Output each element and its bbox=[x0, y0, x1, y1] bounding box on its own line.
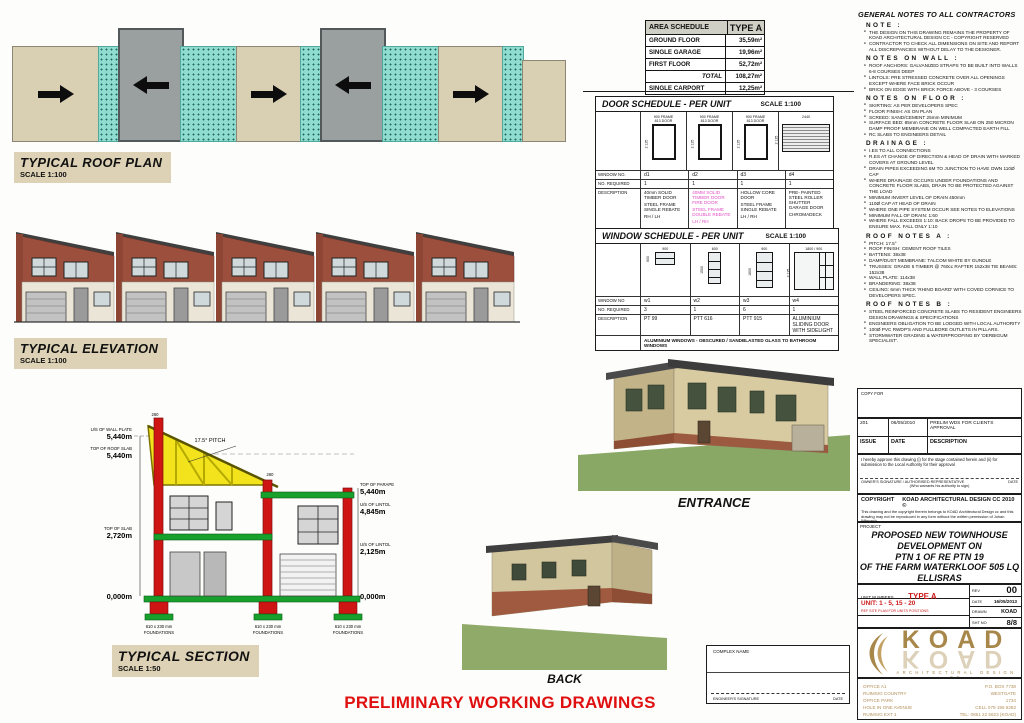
owner-date-label: DATE bbox=[1008, 480, 1018, 484]
svg-text:4,845m: 4,845m bbox=[360, 507, 386, 516]
engineer-date-label: DATE bbox=[833, 697, 843, 701]
sliding-door-w4-icon: 1800 / 900 2 125 bbox=[794, 247, 834, 290]
svg-text:260: 260 bbox=[152, 412, 160, 417]
svg-text:FOUNDATIONS: FOUNDATIONS bbox=[333, 630, 363, 635]
arrow-right-icon bbox=[38, 85, 74, 103]
elevation-drawing bbox=[14, 222, 520, 334]
first-floor-slab bbox=[154, 534, 272, 540]
complex-name-label: COMPLEX NAME bbox=[707, 646, 849, 654]
drawing-number-cell: DRAWING NUMBER 9101/T/ELLISRAS/PWD/08 bbox=[858, 615, 969, 629]
roof-panel bbox=[118, 28, 184, 142]
issue-header-row: ISSUE DATE DESCRIPTION bbox=[858, 436, 1021, 453]
door-d1-icon: 900 FRAME 813 DOOR 2 125 bbox=[652, 115, 676, 160]
door-required-row: NO. REQUIRED 1 1 1 1 bbox=[596, 179, 833, 188]
copyright-label: COPYRIGHT bbox=[861, 497, 894, 509]
warrant-note: (Who warrants his authority to sign) bbox=[858, 484, 1021, 488]
revision-table: UNIT NUMBERS TYPE A UNIT: 1 - 5, 15 - 20… bbox=[857, 584, 1022, 628]
table-row: FIRST FLOOR 52,72m² bbox=[646, 58, 764, 70]
copyright-firm: KOAD ARCHITECTURAL DESIGN CC 2010 © bbox=[902, 497, 1018, 509]
svg-text:0,000m: 0,000m bbox=[107, 592, 133, 601]
table-row: SINGLE CARPORT 12,25m² bbox=[646, 82, 764, 94]
sheet-value: 8/8 bbox=[994, 618, 1019, 627]
foundation-labels: 610 x 230 mm FOUNDATIONS 610 x 230 mm FO… bbox=[144, 624, 363, 635]
roof-truss bbox=[148, 426, 278, 487]
logo-reflection: KOAD bbox=[892, 649, 1021, 669]
unit-range-cell: UNIT: 1 - 5, 15 - 20 REF SITE PLAN FOR U… bbox=[858, 598, 969, 615]
typical-section-drawing: 17.5° PITCH 260 260 bbox=[58, 384, 394, 644]
address-office: OFFICE A1 RUIMSIG COUNTRY OFFICE PARK HO… bbox=[863, 683, 912, 715]
date-cell: DATE 16/05/2013 bbox=[970, 596, 1021, 606]
arrow-right-icon bbox=[251, 85, 287, 103]
owner-signature-label: OWNER'S SIGNATURE / AUTHORISED REPRESENT… bbox=[861, 480, 964, 484]
arrow-right-icon bbox=[453, 85, 489, 103]
address-box: OFFICE A1 RUIMSIG COUNTRY OFFICE PARK HO… bbox=[857, 678, 1022, 720]
project-box: PROJECT PROPOSED NEW TOWNHOUSE DEVELOPME… bbox=[857, 522, 1022, 584]
drawn-cell: DRAWN KOAD bbox=[970, 606, 1021, 616]
roof-plan-scale: SCALE 1:100 bbox=[20, 170, 162, 179]
elevation-title: TYPICAL ELEVATION bbox=[20, 341, 158, 356]
door-icons-row: 900 FRAME 813 DOOR 2 125 900 FRAME 813 D… bbox=[596, 112, 833, 170]
back-caption: BACK bbox=[462, 672, 667, 686]
window-no-row: WINDOW NO w1 w2 w3 w4 bbox=[596, 296, 838, 305]
svg-text:5,440m: 5,440m bbox=[107, 432, 133, 441]
svg-text:2,125m: 2,125m bbox=[360, 547, 386, 556]
roof-plan-label: TYPICAL ROOF PLAN SCALE 1:100 bbox=[14, 152, 171, 183]
table-row-total: TOTAL 108,27m² bbox=[646, 70, 764, 82]
svg-text:0,000m: 0,000m bbox=[360, 592, 386, 601]
section-levels-right: TOP OF PARAPET 5,440m U/S OF LINTOL 4,84… bbox=[360, 482, 394, 601]
window-required-row: NO. REQUIRED 3 1 6 1 bbox=[596, 305, 838, 314]
roof-infill bbox=[502, 46, 524, 142]
window-icons-row: 900 600 600 1500 900 1800 bbox=[596, 244, 838, 296]
section-levels-left: U/S OF WALL PLATE 5,440m TOP OF ROOF SLA… bbox=[90, 427, 132, 601]
sheet-cell: SHT NO 8/8 bbox=[970, 617, 1021, 627]
approval-box: I hereby approve this drawing (i) for th… bbox=[857, 454, 1022, 494]
svg-text:610 x 230 mm: 610 x 230 mm bbox=[335, 624, 362, 629]
area-schedule-table: AREA SCHEDULE TYPE A GROUND FLOOR 35,59m… bbox=[645, 20, 765, 95]
issue-row: 201 06/05/2010 PRELIM WDS FOR CLIENTS AP… bbox=[858, 419, 1021, 436]
complex-name-box: COMPLEX NAME ENGINEER'S SIGNATURE DATE bbox=[706, 645, 850, 704]
approval-text: I hereby approve this drawing (i) for th… bbox=[858, 455, 1021, 470]
signature-line bbox=[860, 478, 1019, 479]
arrow-left-icon bbox=[335, 76, 371, 94]
drawn-value: KOAD bbox=[994, 609, 1019, 615]
unit-type-cell: UNIT NUMBERS TYPE A bbox=[858, 585, 969, 598]
roof-infill bbox=[98, 46, 120, 142]
door-d2-icon: 900 FRAME 813 DOOR 2 125 bbox=[698, 115, 722, 160]
rev-cell: REV 00 bbox=[970, 585, 1021, 596]
logo-swirl-icon bbox=[861, 632, 889, 676]
window-w1-icon: 900 600 bbox=[655, 247, 675, 265]
door-description-row: DESCRIPTION 40mm SOLID TIMBER DOOR STEEL… bbox=[596, 188, 833, 233]
logo-box: KOAD KOAD ARCHITECTURAL DESIGN CC bbox=[857, 628, 1022, 678]
general-notes-heading: GENERAL NOTES TO ALL CONTRACTORS bbox=[858, 10, 1022, 19]
entrance-caption: ENTRANCE bbox=[578, 495, 850, 510]
svg-text:5,440m: 5,440m bbox=[360, 487, 386, 496]
copy-for-box: COPY FOR bbox=[857, 388, 1022, 418]
issue-table: 201 06/05/2010 PRELIM WDS FOR CLIENTS AP… bbox=[857, 418, 1022, 454]
elevation-scale: SCALE 1:100 bbox=[20, 356, 158, 365]
svg-text:FOUNDATIONS: FOUNDATIONS bbox=[253, 630, 283, 635]
ground-floor-door bbox=[170, 552, 200, 596]
address-postal: P.O. BOX 7738 WESTGATE 1734 CELL 079 195… bbox=[960, 683, 1016, 715]
divider bbox=[583, 91, 854, 92]
svg-text:FOUNDATIONS: FOUNDATIONS bbox=[144, 630, 174, 635]
table-row: SINGLE GARAGE 19,96m² bbox=[646, 46, 764, 58]
project-label: PROJECT bbox=[858, 523, 1021, 530]
roof-panel bbox=[12, 46, 100, 142]
door-schedule-table: DOOR SCHEDULE - PER UNIT SCALE 1:100 900… bbox=[595, 96, 834, 234]
ground-slab bbox=[144, 596, 360, 602]
roof-infill bbox=[300, 46, 322, 142]
ground-floor-panel bbox=[204, 552, 226, 596]
garage-door-d4-icon: 2440 2 125 bbox=[782, 115, 830, 152]
svg-text:260: 260 bbox=[267, 472, 275, 477]
copyright-box: COPYRIGHT KOAD ARCHITECTURAL DESIGN CC 2… bbox=[857, 494, 1022, 522]
back-render bbox=[462, 512, 667, 670]
svg-text:610 x 230 mm: 610 x 230 mm bbox=[146, 624, 173, 629]
roof-infill bbox=[382, 46, 440, 142]
roof-infill bbox=[180, 46, 238, 142]
section-label: TYPICAL SECTION SCALE 1:50 bbox=[112, 645, 259, 677]
roof-slab bbox=[261, 492, 354, 498]
window-schedule-header: WINDOW SCHEDULE - PER UNIT SCALE 1:100 bbox=[596, 229, 838, 244]
svg-text:610 x 230 mm: 610 x 230 mm bbox=[255, 624, 282, 629]
svg-text:5,440m: 5,440m bbox=[107, 451, 133, 460]
section-scale: SCALE 1:50 bbox=[118, 664, 250, 673]
roof-panel bbox=[236, 46, 302, 142]
unit-range: UNIT: 1 - 5, 15 - 20 bbox=[861, 600, 966, 607]
general-notes: GENERAL NOTES TO ALL CONTRACTORS NOTE : … bbox=[858, 10, 1022, 344]
elevation-label: TYPICAL ELEVATION SCALE 1:100 bbox=[14, 338, 167, 369]
section-title: TYPICAL SECTION bbox=[118, 648, 250, 664]
sheet-footer-title: PRELIMINARY WORKING DRAWINGS bbox=[280, 693, 720, 713]
site-note: REF SITE PLAN FOR UNITS POSITIONS bbox=[861, 609, 966, 613]
table-row: GROUND FLOOR 35,59m² bbox=[646, 34, 764, 46]
roof-plan-title: TYPICAL ROOF PLAN bbox=[20, 155, 162, 170]
svg-text:2,720m: 2,720m bbox=[107, 531, 133, 540]
area-schedule-type: TYPE A bbox=[727, 21, 764, 34]
roof-panel bbox=[522, 60, 566, 142]
roof-panel bbox=[438, 46, 504, 142]
window-w3-icon: 900 1800 bbox=[756, 247, 773, 288]
door-schedule-header: DOOR SCHEDULE - PER UNIT SCALE 1:100 bbox=[596, 97, 833, 112]
divider bbox=[707, 672, 849, 673]
roof-panel bbox=[320, 28, 386, 142]
entrance-render bbox=[578, 333, 850, 491]
pitch-note: 17.5° PITCH bbox=[195, 438, 226, 444]
drawing-sheet: TYPICAL ROOF PLAN SCALE 1:100 bbox=[0, 0, 1024, 723]
window-w2-icon: 600 1500 bbox=[708, 247, 721, 284]
date-value: 16/05/2013 bbox=[994, 599, 1019, 604]
door-no-row: WINDOW NO. d1 d2 d3 d4 bbox=[596, 170, 833, 179]
engineer-signature-line bbox=[711, 693, 845, 694]
window-description-row: DESCRIPTION PT 99 PTT 616 PTT 915 ALUMIN… bbox=[596, 314, 838, 335]
rev-value: 00 bbox=[994, 585, 1019, 596]
area-schedule-header: AREA SCHEDULE TYPE A bbox=[646, 21, 764, 34]
garage-roller-door bbox=[280, 554, 336, 596]
area-schedule-title: AREA SCHEDULE bbox=[646, 21, 727, 34]
roof-plan-drawing bbox=[12, 26, 564, 144]
arrow-left-icon bbox=[133, 76, 169, 94]
door-d3-icon: 900 FRAME 813 DOOR 2 125 bbox=[744, 115, 768, 160]
foundations bbox=[145, 602, 362, 620]
